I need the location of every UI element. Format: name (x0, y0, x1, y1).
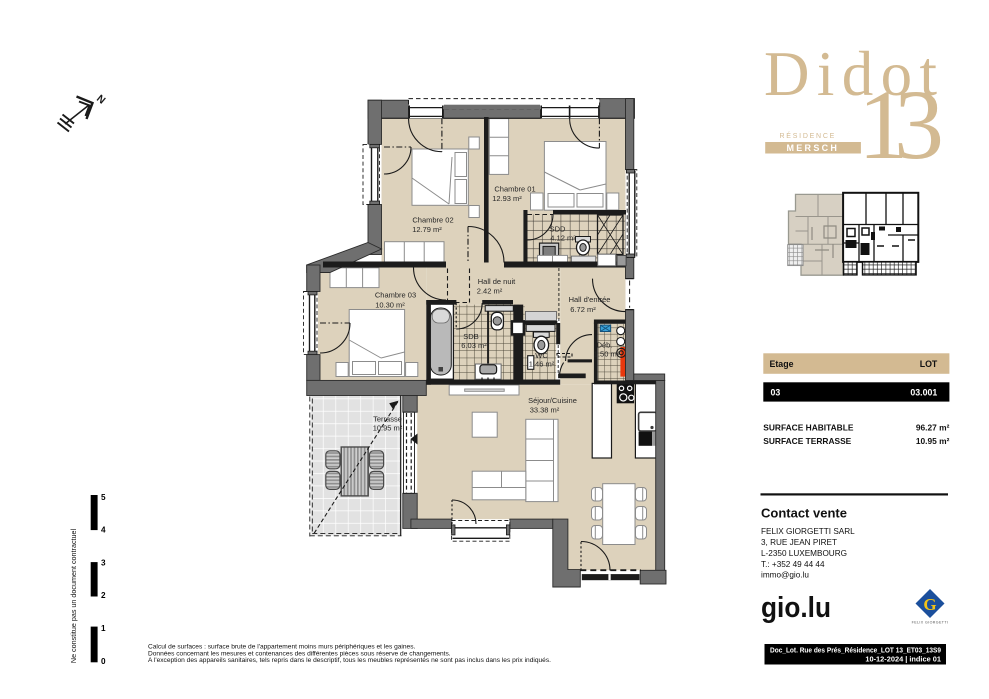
svg-text:SDB: SDB (463, 332, 478, 341)
svg-text:N: N (94, 93, 108, 107)
svg-text:6.03 m²: 6.03 m² (461, 341, 487, 350)
svg-text:SURFACE TERRASSE: SURFACE TERRASSE (763, 436, 851, 446)
svg-text:Chambre 03: Chambre 03 (375, 291, 416, 300)
svg-text:FELIX GIORGETTI SARL: FELIX GIORGETTI SARL (761, 527, 855, 536)
svg-text:A l'exception des appareils sa: A l'exception des appareils sanitaires, … (148, 657, 551, 664)
svg-text:Hall d'entrée: Hall d'entrée (569, 295, 611, 304)
svg-text:10.95 m²: 10.95 m² (373, 424, 403, 433)
svg-text:3: 3 (101, 559, 106, 568)
svg-text:6.72 m²: 6.72 m² (570, 305, 596, 314)
svg-text:4.12 m²: 4.12 m² (550, 234, 576, 243)
svg-text:Chambre 02: Chambre 02 (412, 216, 453, 225)
svg-text:Chambre 01: Chambre 01 (494, 185, 535, 194)
svg-text:10.30 m²: 10.30 m² (375, 301, 405, 310)
svg-text:03.001: 03.001 (910, 387, 937, 397)
svg-text:Etage: Etage (770, 359, 794, 369)
svg-text:LOT: LOT (920, 359, 938, 369)
svg-text:gio.lu: gio.lu (761, 592, 831, 624)
svg-text:3, RUE JEAN PIRET: 3, RUE JEAN PIRET (761, 538, 837, 547)
svg-text:12.79 m²: 12.79 m² (412, 225, 442, 234)
svg-text:Séjour/Cuisine: Séjour/Cuisine (528, 396, 577, 405)
svg-text:2: 2 (101, 591, 106, 600)
svg-text:Doc_Lot. Rue des Prés_Résidenc: Doc_Lot. Rue des Prés_Résidence_LOT 13_E… (770, 645, 941, 654)
svg-text:03: 03 (771, 387, 781, 397)
svg-text:10-12-2024 | indice 01: 10-12-2024 | indice 01 (865, 655, 941, 664)
svg-text:33.38 m²: 33.38 m² (530, 406, 560, 415)
svg-text:T.: +352 49 44 44: T.: +352 49 44 44 (761, 560, 825, 569)
svg-text:SDD: SDD (550, 225, 566, 234)
svg-text:L-2350 LUXEMBOURG: L-2350 LUXEMBOURG (761, 549, 847, 558)
svg-text:immo@gio.lu: immo@gio.lu (761, 571, 809, 580)
svg-text:Terrasse: Terrasse (373, 415, 402, 424)
svg-text:1.46 m²: 1.46 m² (529, 360, 555, 369)
svg-text:1.50 m²: 1.50 m² (594, 350, 620, 359)
svg-text:Contact vente: Contact vente (761, 506, 847, 521)
svg-text:4: 4 (101, 526, 106, 535)
svg-text:FELIX GIORGETTI: FELIX GIORGETTI (912, 621, 949, 625)
svg-text:1: 1 (101, 624, 106, 633)
svg-text:SURFACE HABITABLE: SURFACE HABITABLE (763, 423, 854, 433)
svg-text:Hall de nuit: Hall de nuit (478, 277, 516, 286)
svg-text:2.42 m²: 2.42 m² (477, 287, 503, 296)
svg-text:G: G (923, 595, 936, 614)
svg-text:RÉSIDENCE: RÉSIDENCE (780, 131, 837, 140)
svg-text:Déb.: Déb. (597, 341, 613, 350)
svg-text:10.95 m²: 10.95 m² (916, 436, 950, 446)
svg-text:13: 13 (858, 69, 944, 180)
svg-text:0: 0 (101, 657, 106, 666)
svg-text:5: 5 (101, 493, 106, 502)
svg-text:MERSCH: MERSCH (787, 143, 839, 153)
svg-text:12.93 m²: 12.93 m² (492, 194, 522, 203)
svg-text:96.27 m²: 96.27 m² (916, 423, 950, 433)
svg-text:Ne constitue pas un document c: Ne constitue pas un document contractuel (69, 528, 78, 663)
